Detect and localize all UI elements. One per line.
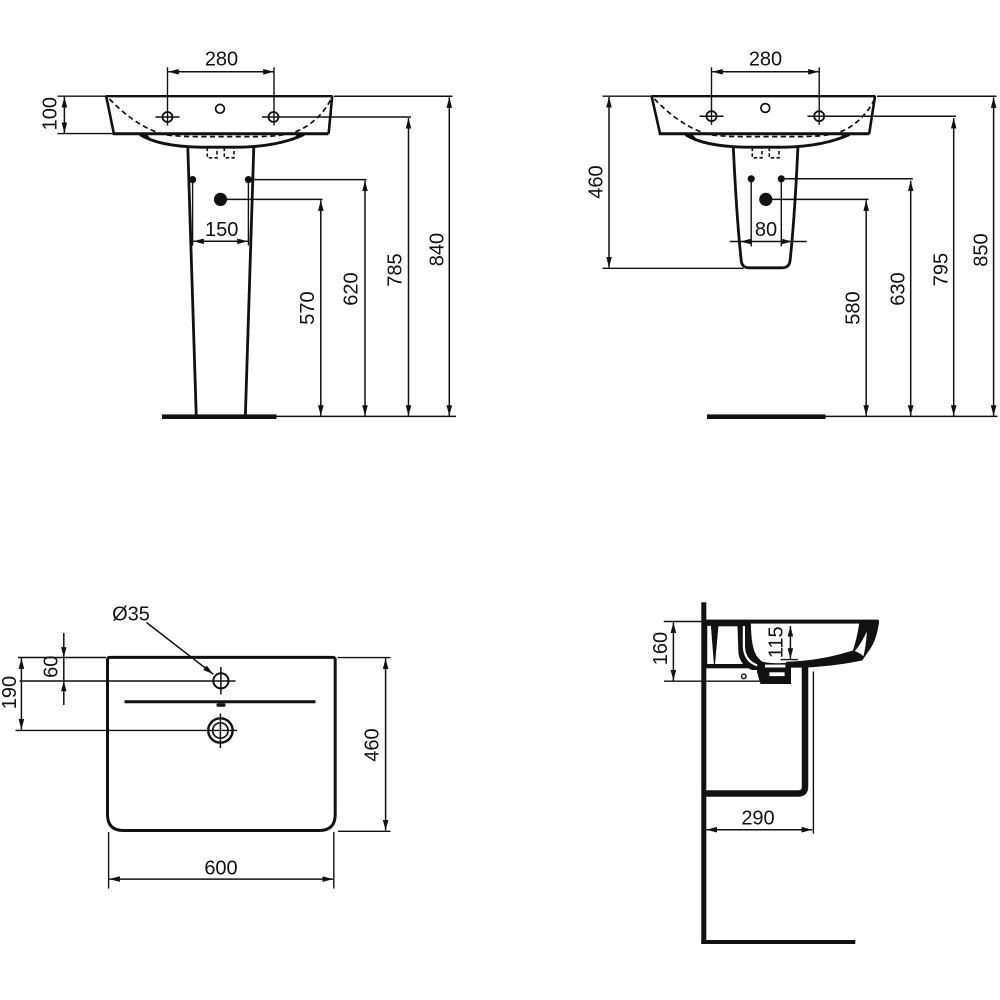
svg-text:580: 580 <box>843 291 865 324</box>
svg-text:600: 600 <box>204 857 237 879</box>
svg-text:115: 115 <box>766 626 788 658</box>
svg-text:80: 80 <box>755 219 777 241</box>
svg-text:795: 795 <box>931 253 953 286</box>
svg-text:280: 280 <box>749 49 782 71</box>
svg-text:280: 280 <box>205 49 238 71</box>
svg-text:630: 630 <box>888 272 910 305</box>
svg-text:570: 570 <box>297 291 319 324</box>
svg-text:60: 60 <box>41 656 63 678</box>
svg-text:785: 785 <box>385 253 407 286</box>
svg-text:160: 160 <box>650 632 672 665</box>
svg-text:100: 100 <box>40 97 62 130</box>
svg-text:460: 460 <box>586 165 608 198</box>
svg-text:850: 850 <box>971 233 993 266</box>
svg-text:840: 840 <box>427 233 449 266</box>
svg-text:Ø35: Ø35 <box>112 604 150 626</box>
svg-text:150: 150 <box>205 219 238 241</box>
svg-text:290: 290 <box>741 808 774 830</box>
svg-text:460: 460 <box>362 728 384 761</box>
svg-text:190: 190 <box>0 676 21 709</box>
svg-text:620: 620 <box>341 272 363 305</box>
